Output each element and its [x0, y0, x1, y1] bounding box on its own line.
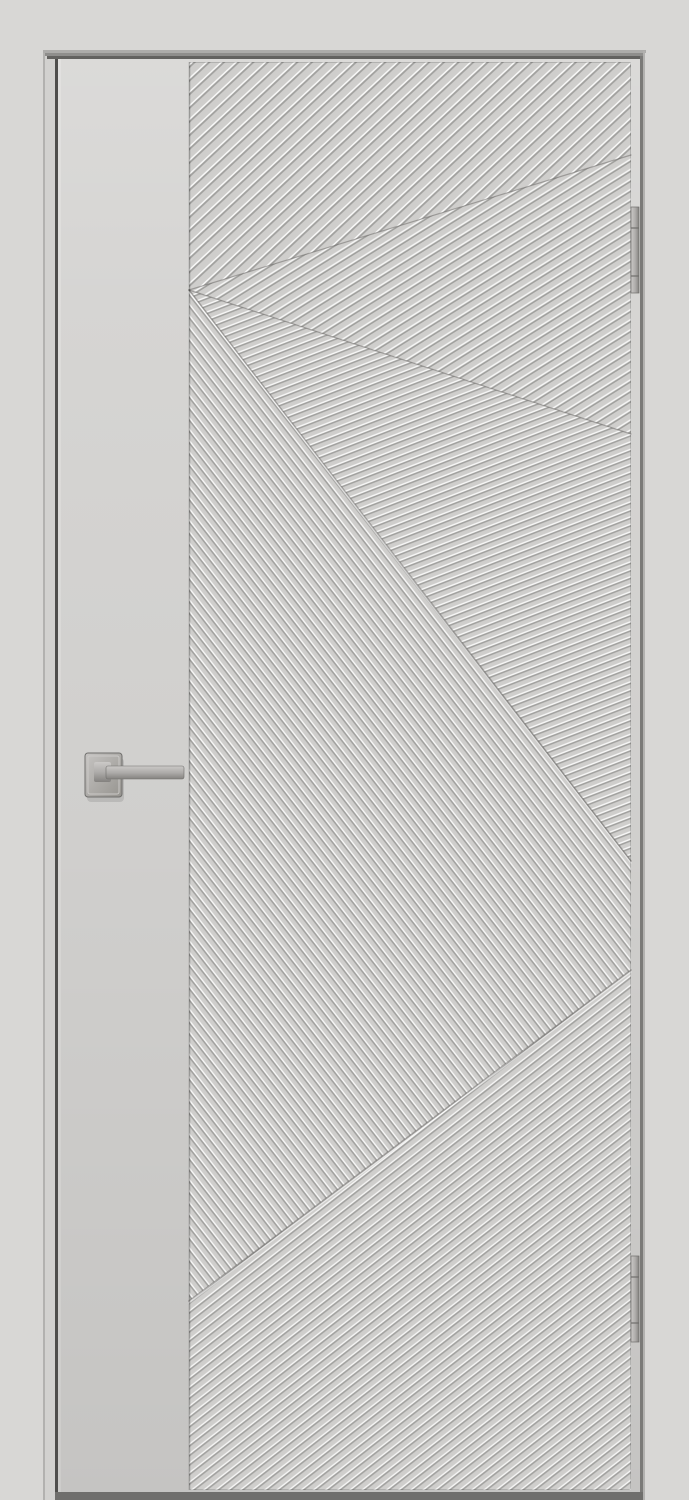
hinge-bottom-barrel	[631, 1256, 639, 1342]
door-detail-layer	[0, 0, 689, 1500]
door-handle	[85, 753, 184, 802]
hinge-top-barrel	[631, 207, 639, 293]
hinge-bottom	[631, 1256, 639, 1342]
handle-lever-bar	[106, 766, 184, 779]
door-photo	[0, 0, 689, 1500]
hinge-top	[631, 207, 639, 293]
engraved-panel	[189, 62, 631, 1490]
